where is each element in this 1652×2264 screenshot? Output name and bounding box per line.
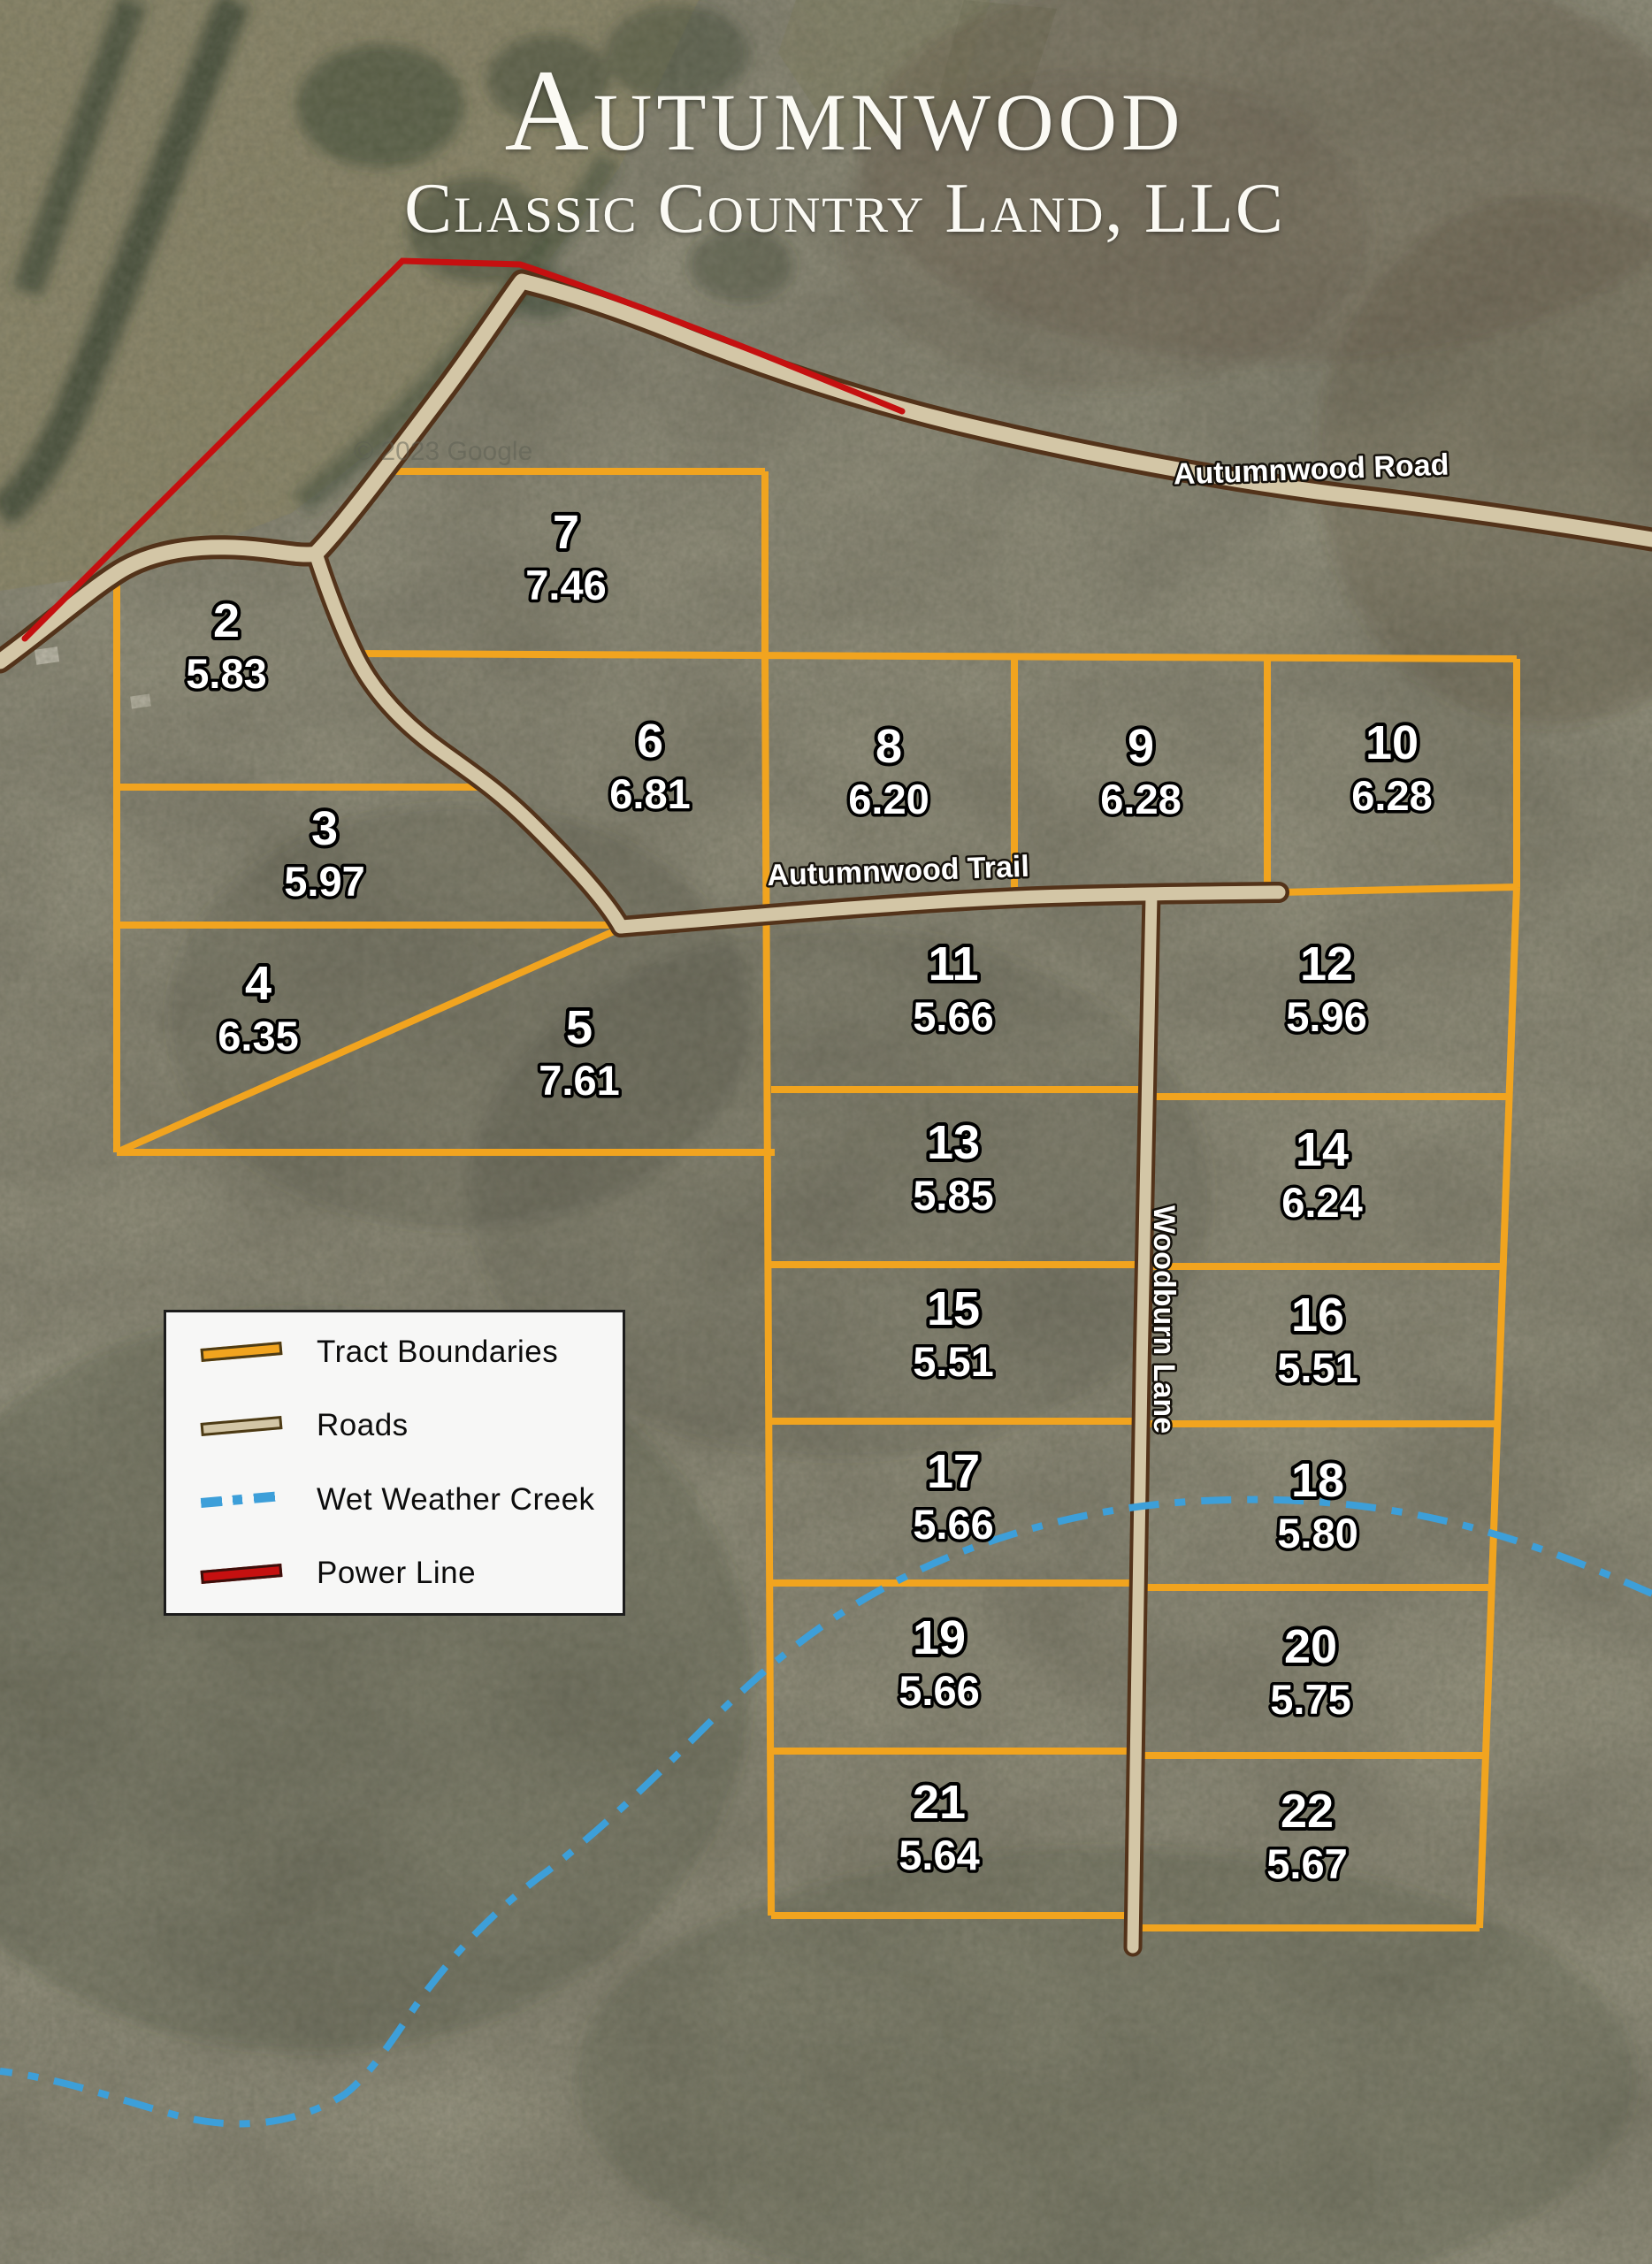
tract-3-number: 3 <box>311 802 338 855</box>
tract-19-number: 19 <box>913 1611 966 1664</box>
tract-13-number: 13 <box>927 1116 980 1169</box>
tract-22-acres: 5.67 <box>1266 1840 1347 1887</box>
tract-2-number: 2 <box>213 594 240 647</box>
tract-12-number: 12 <box>1300 937 1353 990</box>
tract-9-number: 9 <box>1128 720 1154 773</box>
legend: Tract Boundaries Roads Wet Weather Creek… <box>164 1310 625 1616</box>
legend-swatch-cell <box>166 1419 317 1433</box>
woodburn-lane-label: Woodburn Lane <box>1147 1205 1181 1434</box>
legend-item-label: Roads <box>317 1408 409 1443</box>
tract-20-number: 20 <box>1284 1620 1337 1673</box>
tract-16-number: 16 <box>1291 1289 1344 1342</box>
legend-swatch-cell <box>166 1495 317 1504</box>
tract-18-acres: 5.80 <box>1277 1510 1358 1556</box>
tract-6-acres: 6.81 <box>609 770 690 817</box>
tract-7-number: 7 <box>553 506 579 559</box>
power-line-swatch-icon <box>201 1564 283 1584</box>
tract-19-acres: 5.66 <box>899 1667 979 1714</box>
tract-18-number: 18 <box>1291 1454 1344 1507</box>
tract-20-acres: 5.75 <box>1270 1676 1350 1723</box>
legend-item: Wet Weather Creek <box>166 1465 623 1534</box>
tract-9-acres: 6.28 <box>1100 776 1181 822</box>
tract-22-number: 22 <box>1281 1785 1334 1838</box>
tract-12-acres: 5.96 <box>1286 993 1366 1040</box>
tract-6-number: 6 <box>637 715 663 768</box>
legend-item: Tract Boundaries <box>166 1318 623 1387</box>
legend-swatch-cell <box>166 1567 317 1580</box>
legend-item-label: Wet Weather Creek <box>317 1482 595 1518</box>
plat-map: Autumnwood Road Autumnwood Trail Woodbur… <box>0 0 1652 2264</box>
tract-10-number: 10 <box>1365 716 1419 769</box>
tract-boundary-swatch-icon <box>201 1342 283 1362</box>
legend-item-label: Power Line <box>317 1556 476 1591</box>
tract-21-acres: 5.64 <box>899 1832 979 1878</box>
tract-8-acres: 6.20 <box>848 776 929 822</box>
legend-item: Power Line <box>166 1539 623 1608</box>
tract-15-acres: 5.51 <box>913 1338 993 1385</box>
tract-8-number: 8 <box>876 720 902 773</box>
imagery-watermark: © 2023 Google <box>354 437 532 466</box>
tract-10-acres: 6.28 <box>1351 772 1432 819</box>
tract-14-acres: 6.24 <box>1281 1179 1362 1226</box>
tract-4-acres: 6.35 <box>218 1013 298 1059</box>
tract-14-number: 14 <box>1296 1123 1349 1176</box>
tract-11-acres: 5.66 <box>913 993 993 1040</box>
map-canvas: Autumnwood Road Autumnwood Trail Woodbur… <box>0 0 1652 2264</box>
tract-4-number: 4 <box>245 957 272 1010</box>
tract-16-acres: 5.51 <box>1277 1344 1358 1391</box>
tract-17-number: 17 <box>927 1445 980 1498</box>
tract-13-acres: 5.85 <box>913 1172 993 1219</box>
tract-2-acres: 5.83 <box>186 650 266 697</box>
legend-swatch-cell <box>166 1345 317 1358</box>
legend-item-label: Tract Boundaries <box>317 1335 558 1370</box>
tract-3-acres: 5.97 <box>284 858 364 905</box>
tract-7-acres: 7.46 <box>525 562 606 608</box>
tract-17-acres: 5.66 <box>913 1501 993 1548</box>
legend-item: Roads <box>166 1391 623 1460</box>
tract-15-number: 15 <box>927 1282 980 1335</box>
tract-11-number: 11 <box>928 937 978 990</box>
creek-swatch-icon <box>201 1491 283 1508</box>
tract-21-number: 21 <box>913 1776 966 1829</box>
road-swatch-icon <box>201 1416 283 1436</box>
tract-5-number: 5 <box>566 1001 593 1054</box>
tract-5-acres: 7.61 <box>539 1057 619 1104</box>
